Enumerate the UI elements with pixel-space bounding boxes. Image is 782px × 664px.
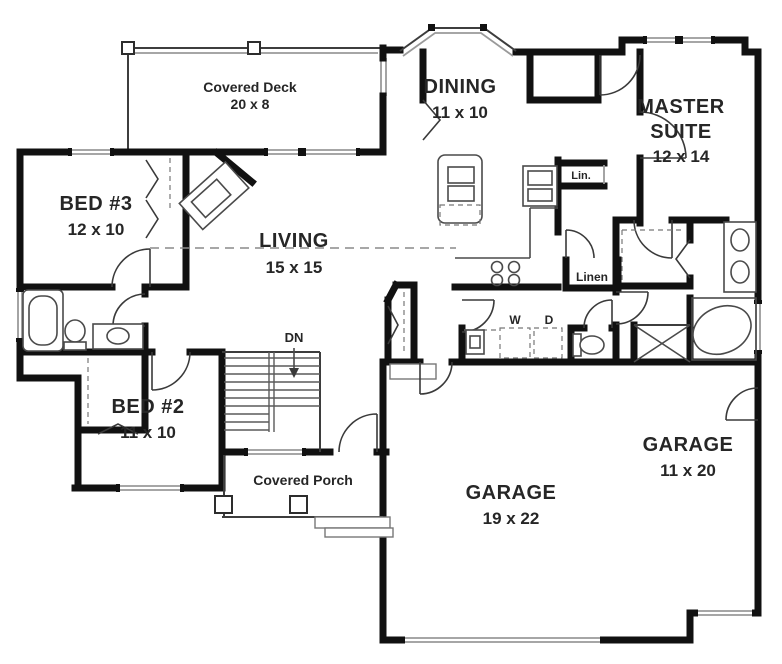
garage-door-side: [698, 608, 752, 618]
cooktop-burner: [509, 262, 520, 273]
washer-box: [500, 328, 530, 358]
walkin-closet-bifold: [676, 240, 690, 278]
bed3-closet-bifold: [146, 160, 158, 238]
label-garage-main-dims: 19 x 22: [483, 509, 540, 528]
label-living: LIVING: [259, 230, 329, 252]
label-garage-main: GARAGE: [466, 482, 557, 504]
floor-plan-drawing: Covered Deck 20 x 8 DINING 11 x 10 MASTE…: [0, 0, 782, 664]
label-garage-side-dims: 11 x 20: [660, 461, 716, 480]
laundry-door: [462, 300, 494, 332]
powder-door: [584, 300, 612, 328]
window: [302, 147, 360, 157]
label-dryer: D: [545, 313, 554, 327]
porch-step: [315, 517, 390, 528]
window: [643, 35, 679, 45]
stairs: [222, 348, 320, 452]
window: [68, 147, 114, 157]
floor-plan-page: Covered Deck 20 x 8 DINING 11 x 10 MASTE…: [0, 0, 782, 664]
label-living-dims: 15 x 15: [266, 258, 323, 277]
window: [679, 35, 715, 45]
front-door: [339, 414, 377, 452]
porch-step: [325, 528, 393, 537]
label-dining: DINING: [424, 76, 497, 98]
label-garage-side: GARAGE: [643, 434, 734, 456]
label-bed3-dims: 12 x 10: [68, 220, 125, 239]
label-bed2-dims: 11 x 10: [120, 423, 176, 442]
hall-bath-door: [113, 294, 145, 326]
garage-service-door: [726, 388, 758, 420]
garage-doors: [390, 364, 752, 645]
toilet: [65, 320, 85, 342]
label-washer: W: [509, 313, 521, 327]
label-covered-porch: Covered Porch: [253, 472, 353, 488]
label-bed3: BED #3: [59, 193, 132, 215]
dining-bay-window: [400, 24, 516, 56]
garage-step: [390, 364, 436, 379]
powder-toilet: [580, 336, 604, 354]
deck-post: [248, 42, 260, 54]
label-bed2: BED #2: [111, 396, 184, 418]
master-hall-bath-door: [616, 292, 648, 324]
window: [753, 300, 763, 354]
linen-door: [566, 230, 594, 258]
label-master-suite-line2: SUITE: [650, 121, 711, 143]
label-master-suite-dims: 12 x 14: [653, 147, 710, 166]
dryer-box: [534, 328, 562, 358]
walkin-closet-shelves: [622, 230, 684, 280]
dining-closet-door: [600, 55, 640, 95]
kitchen-island: [438, 155, 482, 223]
double-vanity: [724, 222, 756, 292]
label-linen-closet: Linen: [576, 270, 608, 284]
label-master-suite-line1: MASTER: [637, 96, 725, 118]
toilet-tank: [64, 342, 86, 350]
bed3-door: [112, 249, 150, 287]
label-dining-dims: 11 x 10: [432, 103, 488, 122]
porch-post: [215, 496, 232, 513]
deck-post: [122, 42, 134, 54]
label-lin-closet: Lin.: [571, 170, 591, 182]
porch-post: [290, 496, 307, 513]
bed2-door: [152, 352, 190, 390]
covered-porch-structure: [215, 455, 393, 537]
stairs-arrowhead: [289, 368, 299, 378]
master-tub: [685, 297, 759, 363]
window: [264, 147, 302, 157]
garage-door-main: [405, 635, 600, 645]
laundry-cabinet: [466, 330, 484, 354]
window: [116, 483, 184, 493]
window: [244, 447, 306, 457]
label-covered-deck-dims: 20 x 8: [231, 96, 270, 112]
cooktop-burner: [492, 262, 503, 273]
mechanical-closet-x: [634, 325, 690, 362]
label-stairs-dn: DN: [285, 330, 304, 345]
label-covered-deck: Covered Deck: [203, 79, 297, 95]
room-labels: Covered Deck 20 x 8 DINING 11 x 10 MASTE…: [59, 76, 733, 528]
